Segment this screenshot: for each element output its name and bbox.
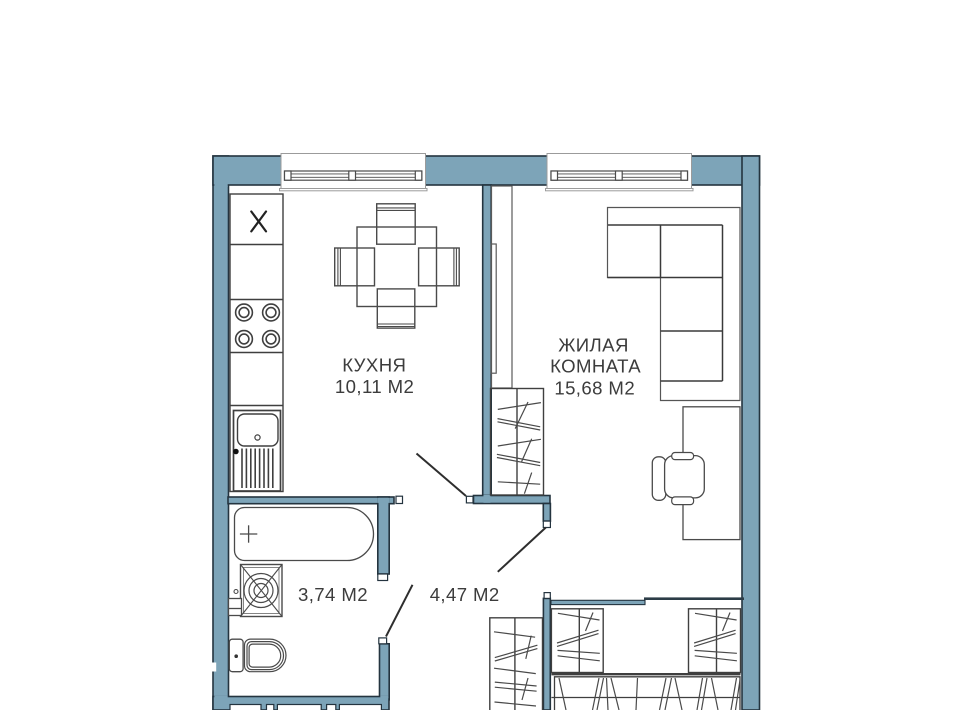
svg-text:ЖИЛАЯ: ЖИЛАЯ (558, 335, 629, 356)
svg-text:4,47 М2: 4,47 М2 (430, 584, 500, 605)
svg-text:КУХНЯ: КУХНЯ (342, 355, 406, 376)
svg-text:КОМНАТА: КОМНАТА (550, 356, 641, 377)
svg-text:10,11 М2: 10,11 М2 (335, 376, 414, 397)
svg-text:15,68 М2: 15,68 М2 (554, 378, 635, 399)
svg-text:3,74 М2: 3,74 М2 (298, 584, 368, 605)
